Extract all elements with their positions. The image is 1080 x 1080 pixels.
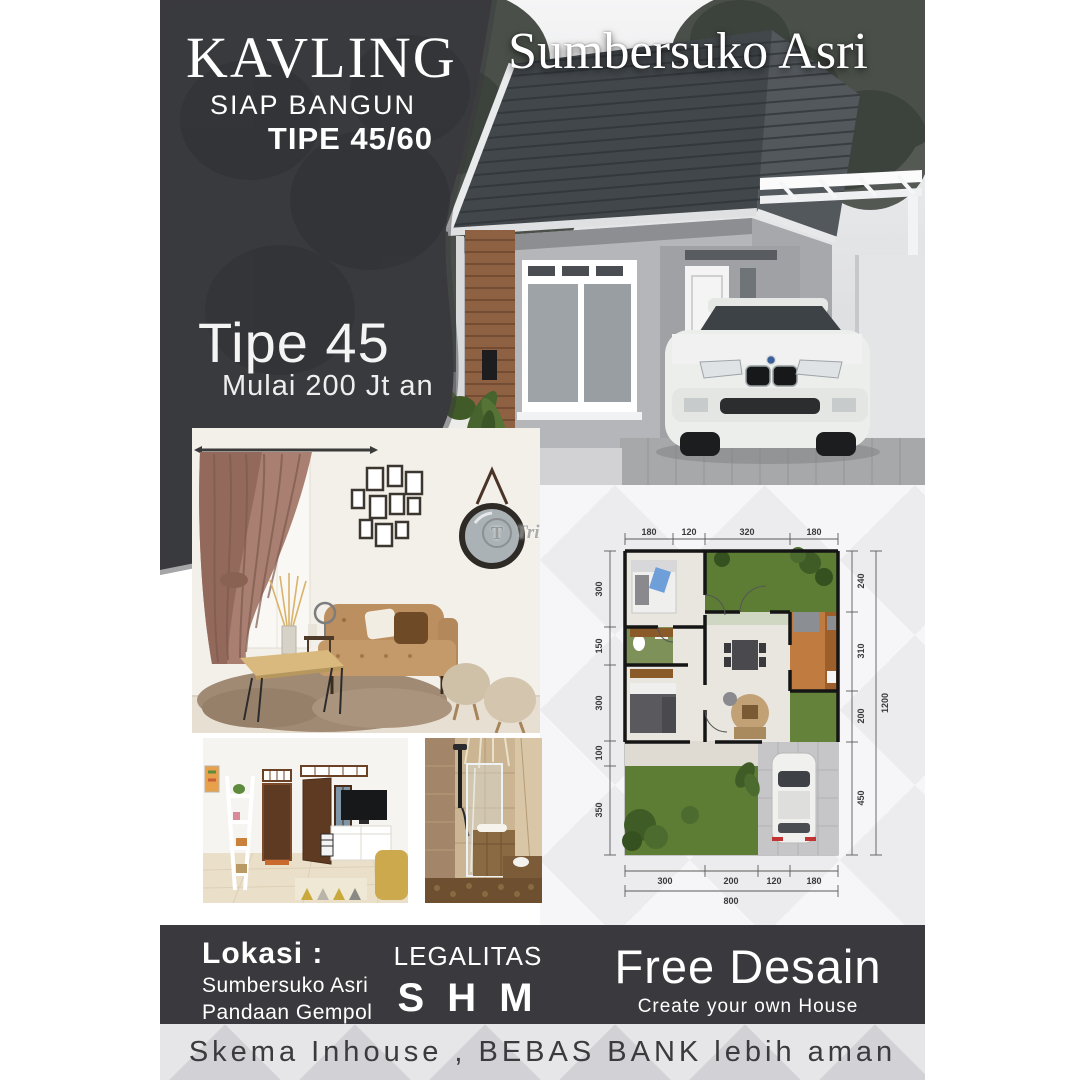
brown-pillow	[394, 612, 428, 644]
legality-value: S H M	[388, 976, 548, 1021]
svg-text:120: 120	[766, 876, 781, 886]
hallway-photo	[203, 738, 408, 903]
plan-car	[772, 753, 816, 843]
scheme-strip: Skema Inhouse , BEBAS BANK lebih aman	[160, 1024, 925, 1080]
front-terrace	[625, 741, 758, 766]
svg-text:320: 320	[739, 527, 754, 537]
svg-text:180: 180	[806, 527, 821, 537]
free-design-subtitle: Create your own House	[583, 996, 913, 1018]
curtain-tieback	[220, 572, 248, 588]
svg-text:800: 800	[723, 896, 738, 906]
svg-text:180: 180	[806, 876, 821, 886]
flyer-content-column: KAVLING SIAP BANGUN TIPE 45/60 Sumbersuk…	[160, 0, 925, 1080]
toilet	[633, 635, 645, 651]
wardrobe-2	[630, 669, 673, 678]
legality-label: LEGALITAS	[388, 941, 548, 972]
svg-text:300: 300	[657, 876, 672, 886]
car-badge	[767, 356, 776, 365]
front-window	[517, 260, 642, 420]
location-block: Lokasi : Sumbersuko Asri Pandaan Gempol	[202, 937, 372, 1025]
svg-text:310: 310	[856, 643, 866, 658]
living-room-photo	[192, 428, 540, 733]
garden-side	[790, 691, 838, 742]
sink	[827, 671, 836, 683]
floor-plan: 180 120 320 180 300 150 300 100 350 240 …	[540, 485, 925, 930]
svg-text:350: 350	[594, 802, 604, 817]
svg-text:1200: 1200	[880, 693, 890, 713]
wardrobe-1	[630, 628, 673, 637]
footer-info-bar: Lokasi : Sumbersuko Asri Pandaan Gempol …	[160, 925, 925, 1024]
stove	[827, 616, 836, 630]
svg-text:180: 180	[641, 527, 656, 537]
legality-block: LEGALITAS S H M	[388, 941, 548, 1021]
bath-accessory	[513, 857, 529, 867]
svg-text:100: 100	[594, 745, 604, 760]
striped-bin	[321, 834, 333, 856]
bathroom-photo	[425, 738, 542, 903]
offer-title: Tipe 45	[198, 310, 390, 375]
banner-title: KAVLING	[186, 24, 446, 91]
pattern-rug	[295, 878, 367, 900]
location-label: Lokasi :	[202, 937, 372, 971]
watermark-logo-icon: T	[482, 518, 512, 548]
scheme-text: Skema Inhouse , BEBAS BANK lebih aman	[189, 1036, 896, 1069]
wall-lamp	[482, 350, 497, 380]
banner-type-label: TIPE 45/60	[188, 121, 433, 157]
location-line-1: Sumbersuko Asri	[202, 974, 372, 998]
svg-text:240: 240	[856, 573, 866, 588]
location-line-2: Pandaan Gempol	[202, 1001, 372, 1025]
kitchen-island	[793, 612, 819, 632]
free-design-title: Free Desain	[583, 939, 913, 994]
sofa-arm	[375, 850, 408, 900]
svg-text:300: 300	[594, 695, 604, 710]
banner-subtitle: SIAP BANGUN	[188, 90, 416, 121]
svg-text:450: 450	[856, 790, 866, 805]
svg-text:200: 200	[723, 876, 738, 886]
floor-plan-panel: 180 120 320 180 300 150 300 100 350 240 …	[540, 485, 925, 930]
mosaic-floor	[425, 878, 542, 903]
offer-price: Mulai 200 Jt an	[222, 370, 434, 403]
svg-text:300: 300	[594, 581, 604, 596]
svg-text:120: 120	[681, 527, 696, 537]
svg-text:150: 150	[594, 638, 604, 653]
towel	[477, 824, 507, 832]
free-design-block: Free Desain Create your own House	[583, 939, 913, 1018]
svg-text:200: 200	[856, 708, 866, 723]
flyer-page: KAVLING SIAP BANGUN TIPE 45/60 Sumbersuk…	[0, 0, 1080, 1080]
terrace-strip	[705, 612, 790, 625]
white-pillow	[364, 608, 398, 640]
hallway-illustration	[203, 738, 408, 903]
bedroom-1	[632, 561, 676, 613]
living-room-illustration	[192, 428, 540, 733]
project-name: Sumbersuko Asri	[478, 22, 898, 81]
bathroom-illustration	[425, 738, 542, 903]
bedroom-2	[630, 683, 676, 733]
door-mat	[265, 860, 289, 865]
